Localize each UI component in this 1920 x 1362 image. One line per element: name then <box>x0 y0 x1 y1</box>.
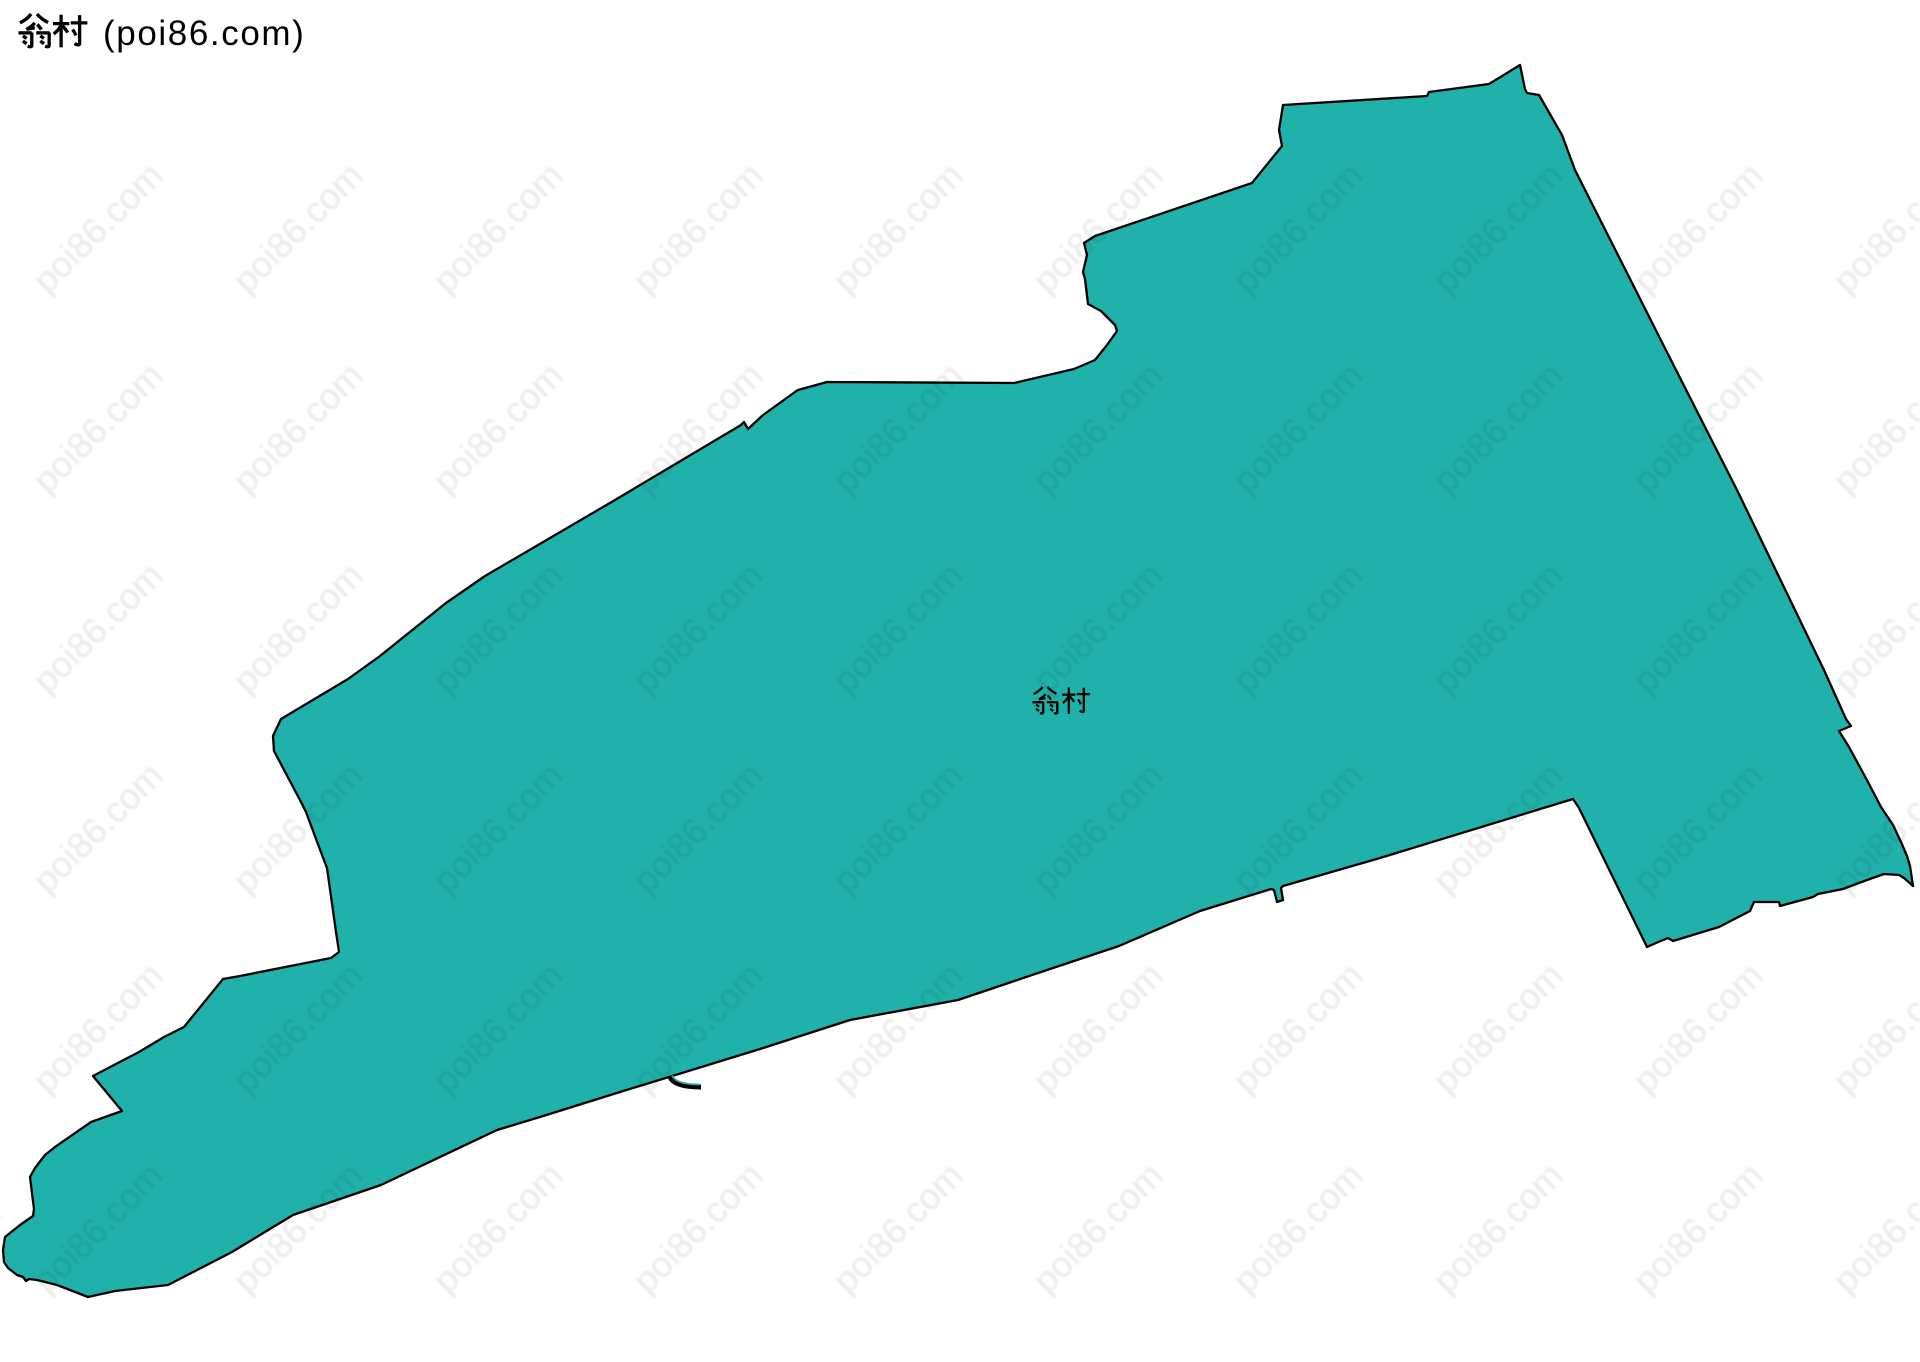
svg-text:(poi86.com): (poi86.com) <box>103 14 305 53</box>
